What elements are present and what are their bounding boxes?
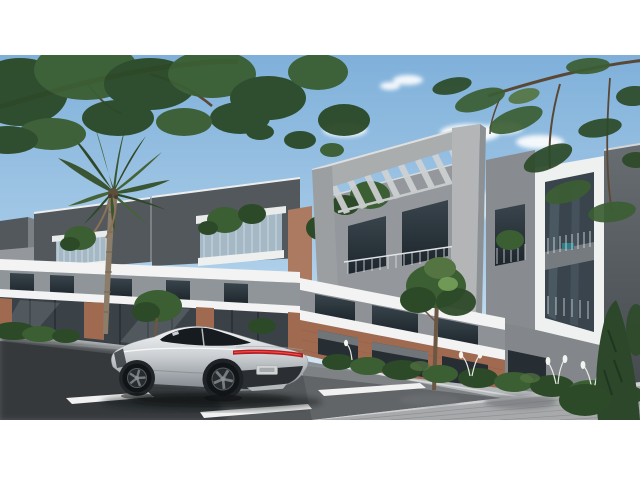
wheel-contact-shadow [121,393,153,399]
brick-pier [84,302,104,340]
terrace-tree [496,230,524,250]
shrub [248,318,276,334]
tree-foliage [438,277,458,291]
terrace-tree [238,204,266,224]
window [224,283,248,304]
unit-far-left [0,217,34,265]
brick-pier [288,312,300,352]
coconut [114,195,118,199]
tree-foliage [424,257,456,279]
letterbox-top [0,0,640,55]
terrace-tree [198,221,218,235]
license-plate-text-smudge [260,368,275,372]
front-wheel [123,364,152,393]
rendered-image [0,0,640,480]
roof-side-face [28,217,34,250]
cloud [380,82,400,90]
wheel-contact-shadow [204,395,242,402]
letterbox-bottom [0,420,640,480]
unit-right-wall [486,150,535,330]
tree-foliage [436,288,476,316]
coconut [108,194,112,198]
shrub [52,329,80,343]
tree-foliage [400,287,436,313]
terrace-tree [60,237,80,251]
roof-volume [0,217,28,253]
rear-wheel [207,363,240,396]
scene-graphic [0,0,640,480]
